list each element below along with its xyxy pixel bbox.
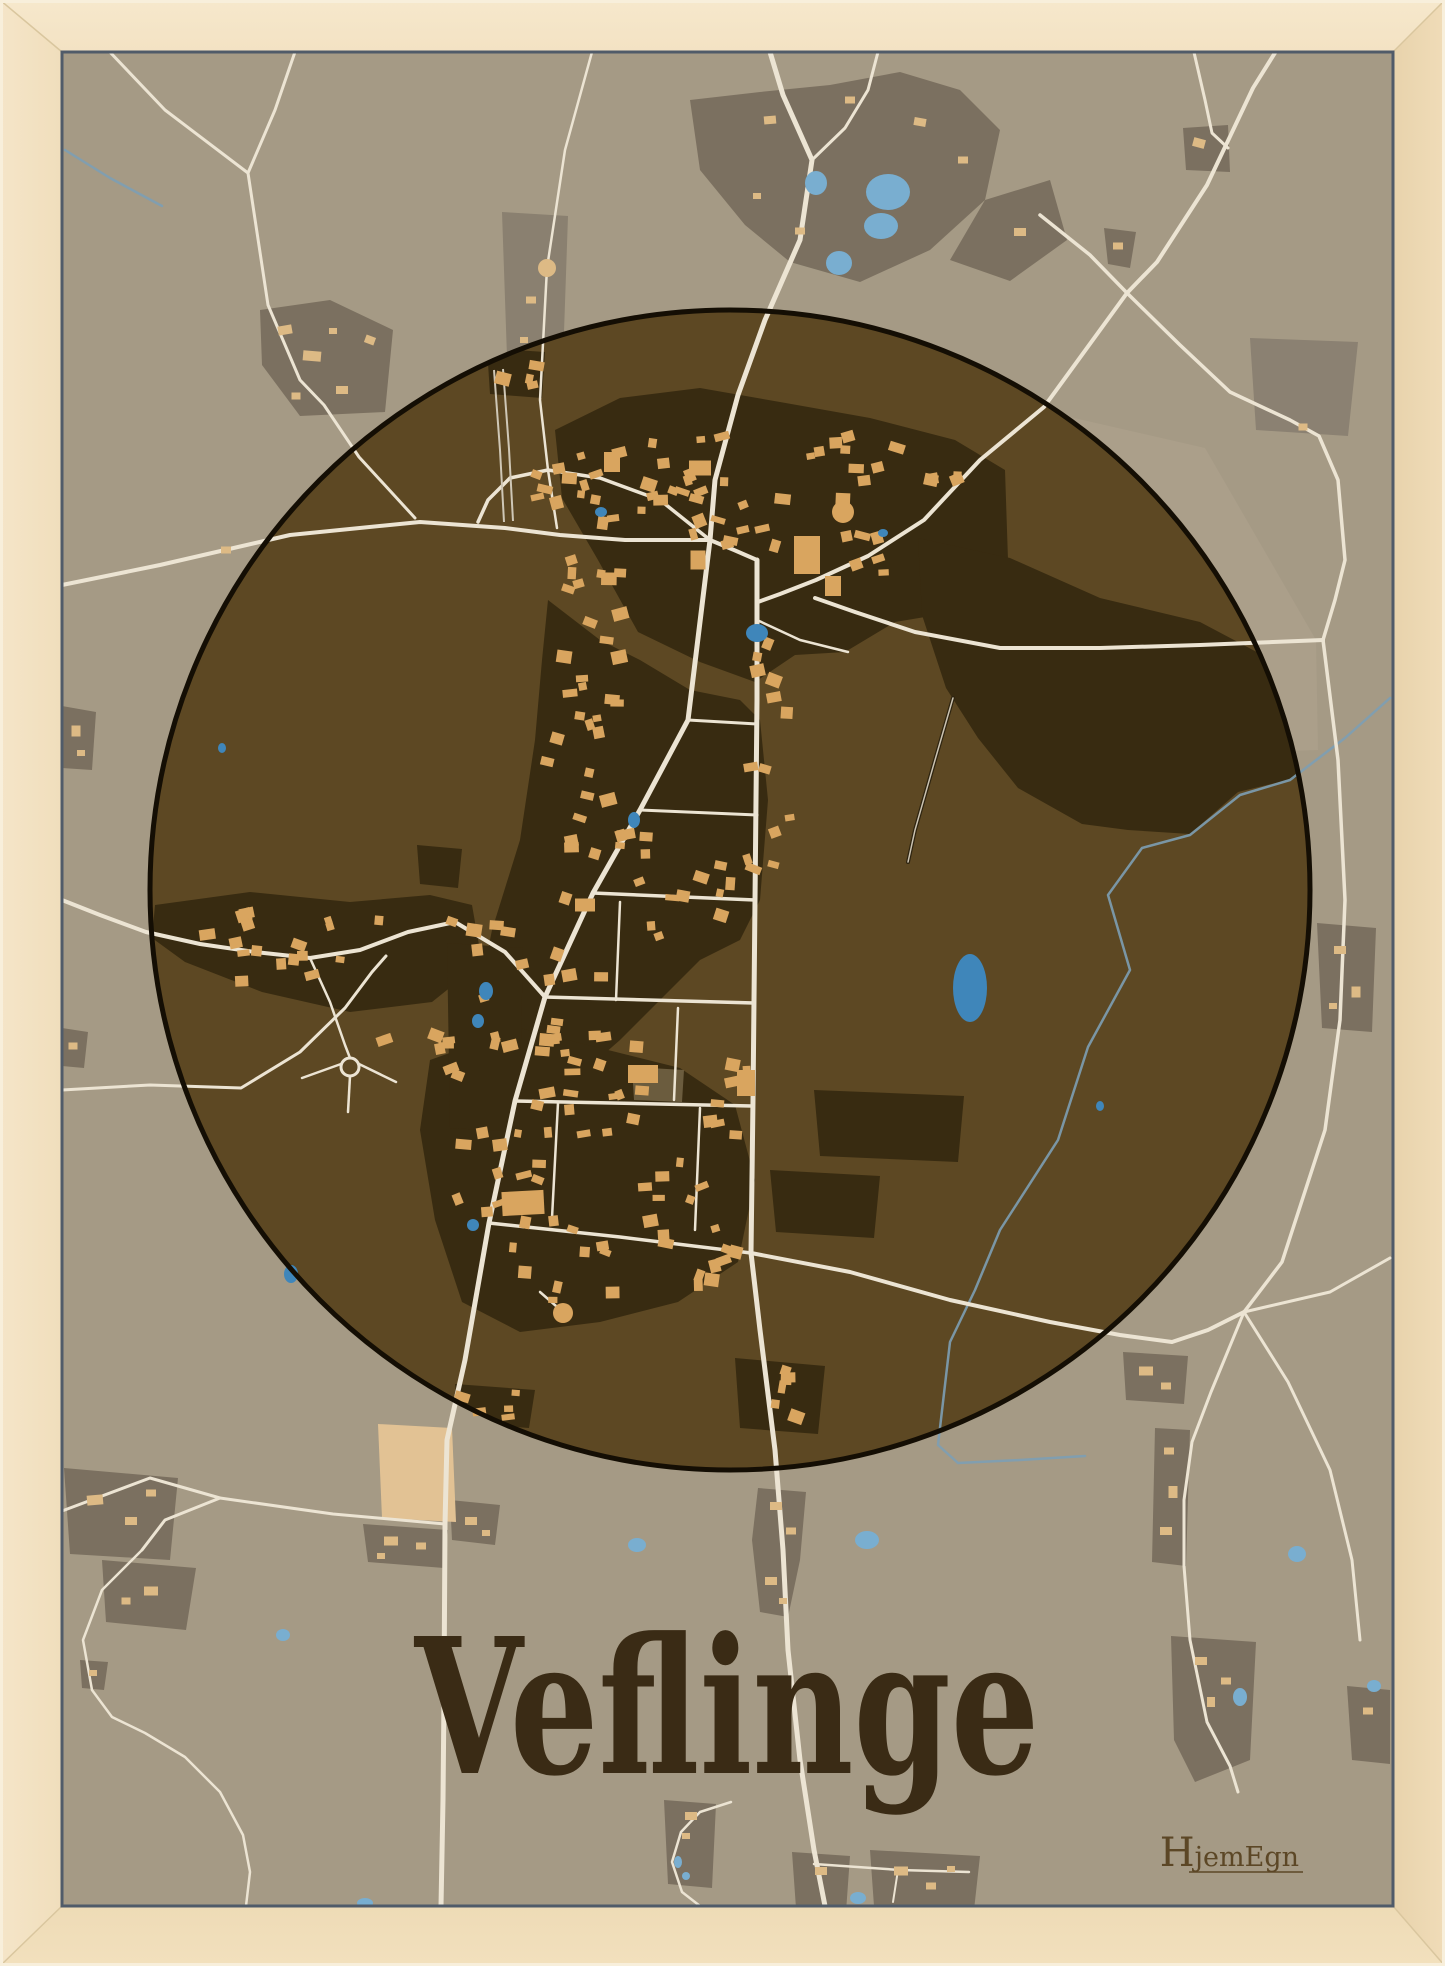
building — [825, 576, 841, 596]
building — [628, 1065, 658, 1083]
building — [504, 1405, 513, 1412]
building — [878, 569, 889, 576]
building — [794, 536, 820, 574]
pond — [628, 1538, 646, 1552]
building — [655, 1171, 669, 1182]
building — [77, 750, 85, 756]
field-patch — [870, 1850, 980, 1910]
building — [336, 386, 348, 394]
building — [384, 1537, 398, 1546]
building — [276, 958, 286, 970]
field-patch — [1347, 1686, 1390, 1764]
pond — [866, 174, 910, 210]
building — [845, 97, 855, 104]
frame-bottom — [0, 1906, 1445, 1966]
pond — [276, 1629, 290, 1641]
building — [770, 1502, 782, 1510]
building — [590, 494, 601, 505]
building — [329, 328, 337, 334]
building — [526, 297, 536, 304]
building — [87, 1494, 104, 1505]
pond — [1367, 1680, 1381, 1692]
building — [548, 1215, 559, 1227]
building — [416, 1543, 426, 1550]
building — [575, 899, 595, 912]
building — [840, 445, 850, 454]
pond — [746, 624, 768, 642]
field-patch — [1250, 338, 1358, 436]
building — [482, 1530, 490, 1536]
building — [489, 920, 504, 930]
building — [543, 974, 555, 986]
poster-map-svg: Veflinge HjemEgn — [0, 0, 1445, 1966]
building — [434, 1042, 446, 1055]
field-patch — [363, 1524, 448, 1568]
building — [614, 568, 626, 577]
building — [1363, 1708, 1373, 1715]
pond — [595, 507, 607, 517]
building — [455, 1139, 472, 1150]
building — [691, 551, 706, 570]
logo-letter-h: H — [1160, 1830, 1195, 1876]
building — [665, 894, 680, 901]
building — [1334, 946, 1346, 954]
building — [641, 849, 651, 859]
building — [1160, 1527, 1172, 1535]
building — [377, 1553, 385, 1559]
building — [765, 1577, 777, 1585]
building — [947, 1866, 955, 1872]
pond — [864, 213, 898, 239]
building — [535, 1046, 550, 1056]
building — [704, 1272, 720, 1287]
building — [292, 393, 301, 400]
frame-right — [1393, 0, 1445, 1966]
building — [786, 1528, 796, 1535]
pond — [1233, 1688, 1247, 1706]
building — [532, 1160, 546, 1169]
building — [481, 1206, 493, 1217]
building — [958, 157, 968, 164]
pond — [682, 1872, 690, 1880]
building — [857, 475, 871, 487]
building — [501, 1190, 544, 1216]
building — [235, 975, 249, 986]
building — [1139, 1367, 1153, 1376]
building — [689, 461, 711, 476]
pond — [878, 529, 888, 537]
building — [592, 726, 605, 740]
building — [562, 472, 578, 484]
building — [564, 1068, 580, 1075]
building — [520, 337, 528, 343]
town-patch — [417, 845, 462, 888]
round-building — [553, 1303, 573, 1323]
town-patch — [770, 1170, 880, 1238]
building — [556, 649, 573, 663]
building — [710, 1099, 724, 1108]
building — [815, 1867, 827, 1875]
building — [653, 495, 668, 506]
pond — [472, 1014, 484, 1028]
field-patch — [1123, 1352, 1188, 1404]
town-patch — [447, 943, 523, 1132]
building — [637, 507, 645, 514]
pond — [628, 812, 640, 828]
building — [1164, 1448, 1174, 1455]
building — [774, 493, 791, 505]
building — [509, 1242, 517, 1252]
building — [676, 1157, 684, 1167]
building — [1014, 228, 1026, 236]
town-patch — [735, 1358, 825, 1434]
building — [1352, 987, 1361, 998]
building — [638, 1182, 652, 1191]
building — [374, 915, 383, 925]
building — [610, 699, 624, 706]
building — [539, 1033, 555, 1047]
building — [567, 567, 576, 579]
pond — [1288, 1546, 1306, 1562]
building — [89, 1670, 97, 1676]
pond — [826, 251, 852, 275]
building — [492, 1138, 508, 1152]
building — [122, 1598, 131, 1605]
building — [1169, 1486, 1178, 1498]
building — [594, 972, 608, 981]
building — [548, 1297, 557, 1303]
building — [1113, 243, 1123, 250]
building — [597, 516, 609, 530]
building — [848, 464, 864, 474]
logo-rest: jemEgn — [1192, 1842, 1299, 1873]
building — [518, 1266, 532, 1279]
building — [780, 707, 793, 719]
building — [72, 726, 81, 737]
pond — [479, 982, 493, 1000]
building — [657, 457, 670, 469]
building — [635, 1085, 649, 1095]
building — [199, 928, 216, 941]
building — [146, 1490, 156, 1497]
pond — [855, 1531, 879, 1549]
building — [753, 193, 761, 199]
building — [629, 1040, 643, 1053]
building — [578, 682, 587, 691]
building — [653, 1195, 665, 1201]
frame-left — [0, 0, 62, 1966]
framed-map-poster: Veflinge HjemEgn — [0, 0, 1445, 1966]
building — [511, 1390, 520, 1397]
building — [576, 675, 588, 682]
building — [752, 652, 762, 662]
pond — [850, 1892, 866, 1904]
building — [335, 956, 344, 963]
field-patch — [1317, 923, 1376, 1032]
building — [562, 689, 577, 698]
building — [476, 1126, 489, 1139]
building — [840, 530, 853, 542]
building — [1207, 1697, 1215, 1707]
building — [251, 945, 262, 957]
building — [604, 452, 620, 472]
building — [514, 1129, 522, 1138]
building — [69, 1043, 78, 1050]
building — [926, 1883, 936, 1890]
building — [596, 569, 605, 578]
building — [544, 1127, 553, 1138]
building — [647, 921, 656, 931]
building — [806, 452, 815, 460]
building — [1161, 1383, 1171, 1390]
building — [927, 472, 939, 485]
building — [953, 471, 962, 481]
building — [703, 1115, 718, 1128]
poster-title: Veflinge — [414, 1598, 1039, 1819]
building — [725, 877, 735, 890]
building — [682, 1833, 690, 1839]
building — [288, 953, 300, 966]
building — [1299, 424, 1308, 431]
building — [639, 832, 653, 842]
building — [729, 1130, 742, 1139]
building — [564, 842, 579, 853]
building — [737, 1070, 755, 1096]
pond — [805, 171, 827, 195]
building — [221, 547, 231, 554]
building — [574, 711, 585, 721]
building — [466, 923, 483, 938]
building — [780, 1374, 791, 1386]
building — [771, 1399, 780, 1409]
building — [1221, 1678, 1231, 1685]
field-patch — [62, 706, 96, 770]
building — [465, 1517, 477, 1525]
building — [564, 1104, 575, 1115]
building — [125, 1517, 137, 1525]
pond — [953, 954, 987, 1022]
building — [696, 436, 705, 443]
building — [795, 228, 805, 235]
pond — [467, 1219, 479, 1231]
building — [615, 842, 625, 849]
round-building — [538, 259, 556, 277]
building — [602, 1128, 613, 1137]
frame-top — [0, 0, 1445, 52]
pond — [674, 1856, 682, 1868]
building — [1329, 1003, 1337, 1009]
building — [1195, 1657, 1207, 1665]
building — [894, 1867, 908, 1876]
building — [144, 1587, 158, 1596]
building — [471, 943, 483, 956]
building — [606, 1287, 620, 1299]
pond — [218, 743, 226, 753]
pond — [1096, 1101, 1104, 1111]
building — [814, 446, 825, 457]
building — [720, 477, 728, 486]
building — [577, 490, 585, 498]
building — [579, 1246, 590, 1257]
building — [764, 115, 777, 124]
building — [560, 1049, 570, 1057]
town-patch — [814, 1090, 964, 1162]
building — [648, 438, 658, 448]
building — [829, 437, 842, 449]
round-building — [832, 501, 854, 523]
building — [303, 350, 322, 362]
